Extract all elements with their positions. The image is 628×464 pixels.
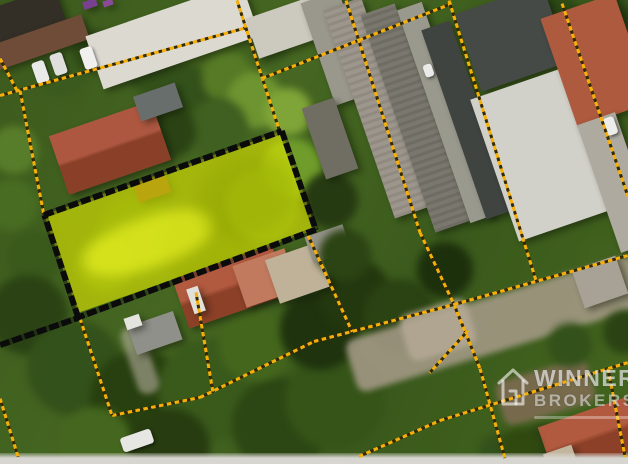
house-icon: [497, 366, 529, 408]
winner-brokers-watermark: WINNER BROKERS: [497, 366, 628, 419]
parcel-border-segment: [0, 315, 79, 347]
parcel-border-segment: [77, 227, 317, 320]
parcel-border-segment: [41, 214, 80, 319]
parcel-border-segment: [43, 128, 283, 217]
parcel-border-segment: [279, 130, 318, 231]
watermark-tagline-bar: [534, 416, 628, 419]
watermark-brand-name: WINNER: [534, 366, 628, 390]
aerial-map: WINNER BROKERS: [0, 0, 628, 464]
watermark-brand-sub: BROKERS: [534, 392, 628, 410]
